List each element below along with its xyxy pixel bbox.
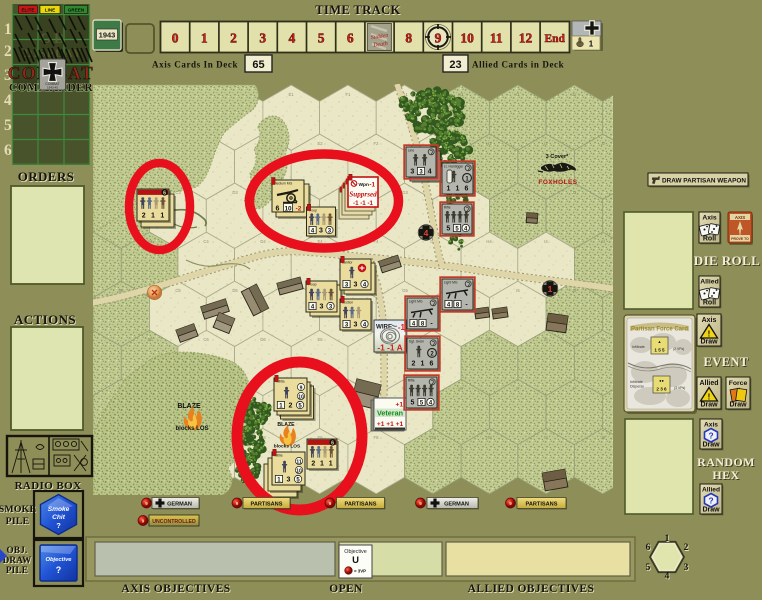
svg-text:GERMAN: GERMAN bbox=[444, 502, 469, 508]
svg-text:ACTIONS: ACTIONS bbox=[14, 312, 76, 327]
svg-text:C4: C4 bbox=[203, 239, 209, 244]
svg-text:Light MG: Light MG bbox=[409, 299, 423, 303]
svg-text:1: 1 bbox=[320, 461, 324, 468]
svg-text:1: 1 bbox=[548, 284, 553, 294]
svg-text:J3: J3 bbox=[572, 190, 577, 195]
svg-text:1: 1 bbox=[160, 213, 164, 220]
svg-text:D5: D5 bbox=[232, 288, 238, 293]
svg-text:1: 1 bbox=[201, 31, 208, 46]
svg-text:(3 VPs): (3 VPs) bbox=[674, 386, 685, 390]
svg-text:J8: J8 bbox=[601, 435, 606, 440]
svg-text:6: 6 bbox=[276, 206, 280, 213]
svg-text:1: 1 bbox=[421, 361, 425, 368]
svg-text:DRAW: DRAW bbox=[3, 555, 32, 565]
svg-text:G3: G3 bbox=[402, 190, 408, 195]
svg-text:U: U bbox=[352, 555, 359, 566]
svg-text:TIME TRACK: TIME TRACK bbox=[315, 3, 400, 17]
svg-text:Line: Line bbox=[408, 148, 415, 152]
svg-text:J4: J4 bbox=[601, 239, 606, 244]
svg-text:G5: G5 bbox=[402, 288, 408, 293]
svg-text:F2: F2 bbox=[374, 141, 380, 146]
svg-text:6: 6 bbox=[4, 142, 12, 159]
svg-text:ELITE: ELITE bbox=[21, 8, 34, 13]
svg-text:8: 8 bbox=[405, 31, 412, 46]
svg-text:Partisan Force Card: Partisan Force Card bbox=[631, 327, 688, 333]
svg-text:+1 +1 +1: +1 +1 +1 bbox=[377, 421, 404, 428]
svg-text:G8: G8 bbox=[430, 435, 436, 440]
svg-text:DIE ROLL: DIE ROLL bbox=[694, 253, 760, 268]
svg-text:H1: H1 bbox=[458, 92, 464, 97]
svg-text:-1 -1 A: -1 -1 A bbox=[377, 343, 402, 353]
svg-text:2 3 6: 2 3 6 bbox=[656, 387, 667, 392]
svg-text:5: 5 bbox=[446, 226, 450, 233]
svg-text:GERMAN: GERMAN bbox=[167, 502, 192, 508]
svg-text:?: ? bbox=[708, 495, 713, 505]
svg-text:UNCONTROLLED: UNCONTROLLED bbox=[152, 519, 196, 525]
svg-text:1: 1 bbox=[589, 40, 594, 49]
svg-text:Disperse: Disperse bbox=[630, 385, 644, 389]
svg-text:H2: H2 bbox=[486, 141, 492, 146]
svg-text:HEX: HEX bbox=[712, 468, 739, 482]
svg-text:4: 4 bbox=[424, 228, 429, 238]
svg-text:Chit: Chit bbox=[52, 514, 66, 521]
svg-text:PILE: PILE bbox=[6, 565, 28, 575]
svg-text:Rifle: Rifle bbox=[408, 378, 415, 382]
svg-text:3: 3 bbox=[354, 282, 358, 289]
svg-text:1: 1 bbox=[151, 213, 155, 220]
svg-text:F1: F1 bbox=[346, 92, 352, 97]
svg-text:10: 10 bbox=[298, 394, 304, 400]
svg-text:1: 1 bbox=[329, 461, 333, 468]
svg-text:Infiltrate: Infiltrate bbox=[632, 345, 645, 349]
svg-text:Light MG: Light MG bbox=[444, 280, 458, 284]
svg-text:BLAZE: BLAZE bbox=[177, 403, 201, 410]
svg-text:J2: J2 bbox=[601, 141, 606, 146]
svg-text:5: 5 bbox=[411, 400, 415, 407]
svg-text:Allied Cards in Deck: Allied Cards in Deck bbox=[472, 60, 564, 70]
svg-text:Draw: Draw bbox=[700, 401, 718, 408]
svg-text:10: 10 bbox=[296, 468, 302, 474]
svg-text:12: 12 bbox=[519, 31, 533, 46]
svg-text:10: 10 bbox=[460, 31, 474, 46]
svg-text:?: ? bbox=[708, 430, 713, 440]
svg-text:?: ? bbox=[56, 521, 61, 530]
svg-text:AXIS OBJECTIVES: AXIS OBJECTIVES bbox=[121, 583, 230, 595]
svg-text:D6: D6 bbox=[260, 337, 266, 342]
svg-text:OBJ.: OBJ. bbox=[7, 545, 28, 555]
svg-text:Rifle: Rifle bbox=[444, 205, 451, 209]
svg-text:DRAW PARTISAN WEAPON: DRAW PARTISAN WEAPON bbox=[662, 177, 746, 184]
svg-text:11: 11 bbox=[490, 31, 503, 46]
svg-text:-1 -1 -1: -1 -1 -1 bbox=[353, 200, 374, 207]
svg-text:3: 3 bbox=[354, 322, 358, 329]
svg-text:Infiltrate: Infiltrate bbox=[630, 380, 643, 384]
svg-text:C5: C5 bbox=[175, 288, 181, 293]
svg-text:1 5 5: 1 5 5 bbox=[654, 348, 665, 353]
svg-text:blocks LOS: blocks LOS bbox=[175, 426, 208, 432]
svg-text:3 Cover*: 3 Cover* bbox=[546, 154, 570, 160]
svg-text:3: 3 bbox=[319, 228, 323, 235]
svg-text:E1: E1 bbox=[288, 92, 294, 97]
svg-text:blocks LOS: blocks LOS bbox=[274, 444, 301, 450]
svg-text:Draw: Draw bbox=[702, 507, 720, 514]
svg-text:4: 4 bbox=[4, 92, 12, 109]
svg-text:GREEN: GREEN bbox=[68, 8, 85, 13]
svg-text:!: ! bbox=[708, 330, 711, 339]
svg-text:Lt. Hardigger: Lt. Hardigger bbox=[444, 164, 464, 168]
svg-text:2: 2 bbox=[289, 403, 293, 410]
svg-text:1: 1 bbox=[456, 186, 460, 193]
svg-text:4: 4 bbox=[428, 169, 432, 176]
svg-text:65: 65 bbox=[252, 59, 264, 71]
svg-text:Axis: Axis bbox=[704, 421, 718, 428]
svg-text:3: 3 bbox=[320, 304, 324, 311]
svg-text:2: 2 bbox=[4, 43, 12, 60]
svg-text:Axis Cards In Deck: Axis Cards In Deck bbox=[152, 60, 238, 70]
svg-text:2: 2 bbox=[142, 213, 146, 220]
svg-text:J1: J1 bbox=[572, 92, 577, 97]
svg-text:Sgt. Grein: Sgt. Grein bbox=[409, 339, 424, 343]
svg-text:6: 6 bbox=[347, 31, 354, 46]
svg-text:OPEN: OPEN bbox=[329, 583, 363, 595]
svg-text:2: 2 bbox=[684, 543, 689, 553]
svg-text:Roll: Roll bbox=[703, 235, 716, 242]
svg-text:= 3VP: = 3VP bbox=[354, 569, 366, 574]
svg-text:Objective: Objective bbox=[45, 557, 72, 563]
svg-text:RANDOM: RANDOM bbox=[697, 455, 755, 469]
svg-text:J6: J6 bbox=[601, 337, 606, 342]
svg-text:3: 3 bbox=[684, 563, 689, 573]
svg-text:J7: J7 bbox=[572, 386, 577, 391]
svg-text:H4: H4 bbox=[486, 239, 492, 244]
svg-text:6: 6 bbox=[646, 543, 651, 553]
svg-text:6: 6 bbox=[465, 186, 469, 193]
svg-text:LINE: LINE bbox=[45, 8, 55, 13]
svg-text:▲: ▲ bbox=[658, 339, 662, 344]
svg-text:Force: Force bbox=[729, 380, 748, 387]
svg-text:H6: H6 bbox=[486, 337, 492, 342]
svg-text:5: 5 bbox=[646, 563, 651, 573]
svg-text:3: 3 bbox=[287, 477, 291, 484]
svg-text:-1: -1 bbox=[369, 182, 375, 189]
svg-text:0: 0 bbox=[172, 31, 179, 46]
svg-text:6: 6 bbox=[163, 191, 166, 197]
svg-text:Wpn: Wpn bbox=[359, 182, 369, 188]
svg-text:5: 5 bbox=[318, 31, 325, 46]
svg-text:1943-45: 1943-45 bbox=[47, 86, 58, 90]
svg-text:Draw: Draw bbox=[700, 338, 718, 345]
svg-text:Axis: Axis bbox=[702, 317, 717, 324]
svg-text:E2: E2 bbox=[317, 141, 323, 146]
svg-text:23: 23 bbox=[449, 59, 461, 71]
svg-text:PROVE TO: PROVE TO bbox=[731, 237, 749, 241]
svg-text:F8: F8 bbox=[374, 435, 380, 440]
svg-text:ALLIED OBJECTIVES: ALLIED OBJECTIVES bbox=[468, 583, 595, 595]
svg-text:Veteran: Veteran bbox=[377, 409, 403, 418]
svg-text:B5: B5 bbox=[118, 288, 124, 293]
svg-text:PARTISANS: PARTISANS bbox=[345, 502, 377, 508]
svg-text:Allied: Allied bbox=[699, 380, 718, 387]
svg-text:FOXHOLES: FOXHOLES bbox=[538, 179, 577, 186]
svg-text:E6: E6 bbox=[317, 337, 323, 342]
svg-text:ORDERS: ORDERS bbox=[18, 169, 75, 184]
svg-text:4: 4 bbox=[665, 572, 670, 582]
svg-text:PARTISANS: PARTISANS bbox=[526, 502, 558, 508]
svg-text:Smoke: Smoke bbox=[48, 506, 70, 513]
svg-text:Roll: Roll bbox=[703, 299, 716, 306]
svg-text:9: 9 bbox=[300, 385, 303, 391]
svg-text:Draw: Draw bbox=[702, 442, 720, 449]
svg-text:AXIS: AXIS bbox=[735, 215, 745, 220]
svg-text:Medium MG: Medium MG bbox=[274, 181, 293, 185]
svg-text:2: 2 bbox=[412, 361, 416, 368]
svg-text:+1: +1 bbox=[395, 402, 403, 409]
svg-text:PARTISANS: PARTISANS bbox=[251, 502, 283, 508]
svg-text:10: 10 bbox=[284, 205, 292, 212]
svg-text:●●: ●● bbox=[659, 378, 664, 383]
svg-text:SMOKE: SMOKE bbox=[0, 504, 36, 515]
svg-text:1: 1 bbox=[4, 21, 12, 38]
svg-text:1: 1 bbox=[447, 186, 451, 193]
svg-text:3: 3 bbox=[410, 169, 414, 176]
svg-text:1943: 1943 bbox=[99, 30, 116, 39]
svg-text:?: ? bbox=[56, 565, 62, 575]
svg-text:EVENT: EVENT bbox=[703, 355, 748, 369]
svg-text:D4: D4 bbox=[260, 239, 266, 244]
svg-text:1: 1 bbox=[665, 534, 670, 544]
svg-text:9: 9 bbox=[435, 31, 442, 46]
svg-text:D3: D3 bbox=[232, 190, 238, 195]
svg-text:Allied: Allied bbox=[702, 486, 720, 493]
svg-text:(2 VPs): (2 VPs) bbox=[673, 347, 684, 351]
svg-text:PILE: PILE bbox=[6, 516, 30, 527]
svg-text:6: 6 bbox=[331, 441, 334, 447]
svg-text:Draw: Draw bbox=[729, 401, 747, 408]
svg-text:C6: C6 bbox=[203, 337, 209, 342]
svg-text:!: ! bbox=[708, 393, 711, 402]
svg-text:End: End bbox=[544, 33, 565, 45]
svg-text:Allied: Allied bbox=[700, 279, 719, 286]
svg-text:2: 2 bbox=[230, 31, 237, 46]
svg-text:3: 3 bbox=[259, 31, 266, 46]
svg-text:11: 11 bbox=[296, 459, 302, 465]
svg-text:Supprsed: Supprsed bbox=[349, 191, 377, 199]
svg-text:6: 6 bbox=[430, 361, 434, 368]
svg-text:J5: J5 bbox=[572, 288, 577, 293]
svg-text:H7: H7 bbox=[458, 386, 464, 391]
svg-text:B6: B6 bbox=[147, 337, 153, 342]
svg-text:5: 5 bbox=[4, 117, 12, 134]
svg-text:Axis: Axis bbox=[702, 215, 717, 222]
svg-text:H8: H8 bbox=[486, 435, 492, 440]
svg-text:-2: -2 bbox=[296, 206, 302, 213]
svg-text:2: 2 bbox=[311, 461, 315, 468]
svg-text:4: 4 bbox=[289, 31, 296, 46]
